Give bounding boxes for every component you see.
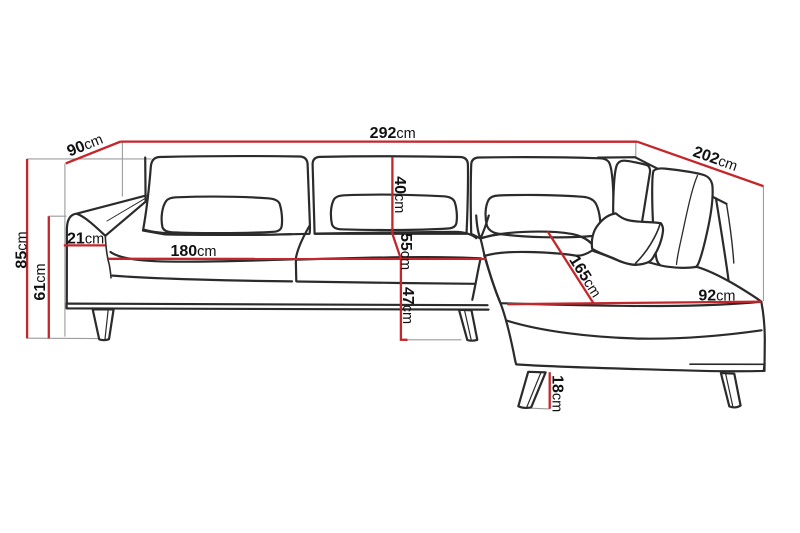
svg-text:18cm: 18cm <box>548 375 565 412</box>
svg-text:61cm: 61cm <box>32 263 49 300</box>
svg-text:92cm: 92cm <box>698 288 735 305</box>
svg-text:55cm: 55cm <box>397 233 414 270</box>
svg-text:85cm: 85cm <box>13 231 30 268</box>
svg-text:21cm: 21cm <box>67 231 104 248</box>
svg-text:292cm: 292cm <box>370 125 416 142</box>
svg-text:40cm: 40cm <box>391 176 408 213</box>
svg-text:47cm: 47cm <box>399 287 416 324</box>
svg-text:180cm: 180cm <box>170 243 216 260</box>
